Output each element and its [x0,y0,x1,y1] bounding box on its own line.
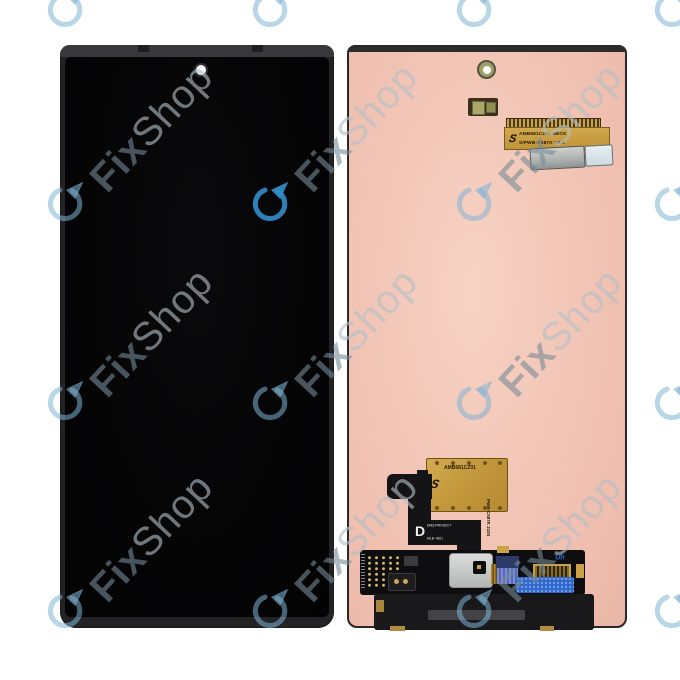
gold-contact [376,600,384,612]
gold-contact [497,546,509,553]
product-photo: S AMB681CZ01 NECK S/PWB-C587K V0.2 AMB68… [0,0,680,680]
camera-punch-hole-front [196,65,206,75]
sensor-window-left [472,101,485,115]
front-display-panel [60,45,334,628]
shield-component [473,561,486,574]
circular-arrow-logo-icon [248,0,292,30]
gold-tab [576,564,584,578]
driver-ic-label: AMB681CZ01 S PWB-C587K 2104 [426,458,508,512]
main-flex-pcb: Uh [360,550,585,595]
white-sticker [584,144,613,166]
back-display-panel: S AMB681CZ01 NECK S/PWB-C587K V0.2 AMB68… [347,45,627,628]
circular-arrow-logo-icon [650,379,680,423]
ic-chip [388,573,416,591]
bottom-antenna-bar [374,594,594,630]
circular-arrow-logo-icon [650,0,680,30]
silver-sticker [529,146,585,171]
blue-connector-grid [516,577,574,593]
top-flex-text-line1: AMB681CZ01 NECK [519,131,567,136]
frame-notch [138,45,149,52]
gold-contact [540,626,554,631]
camera-hole-core [483,66,491,74]
blue-component-ribbed [497,568,518,584]
frame-notch [252,45,263,52]
pcb-logo-mark: Uh [555,553,565,561]
small-ic [404,556,418,566]
circular-arrow-logo-icon [650,587,680,631]
circular-arrow-logo-icon [650,180,680,224]
front-screen [65,57,329,617]
gold-contact [390,626,405,631]
silkscreen-text [361,554,365,590]
circular-arrow-logo-icon [452,0,496,30]
manufacturer-logo-icon: S [508,133,518,145]
flex-d-marking: D [415,524,425,538]
sensor-window-block [468,98,498,116]
driver-ic-part-number: AMB681CZ01 [444,465,476,471]
sensor-window-right [486,102,496,113]
back-top-edge [349,47,625,52]
emi-shield-can [449,553,493,588]
antenna-slot [428,610,525,620]
circular-arrow-logo-icon [43,0,87,30]
camera-hole-back [477,60,496,79]
front-top-edge [60,45,334,57]
flex-marking-text: DM3-PROJECT MLB +B01 SCP1B22 [427,524,491,551]
top-flex-text-line2: S/PWB-C587K V0.2 [519,140,565,145]
